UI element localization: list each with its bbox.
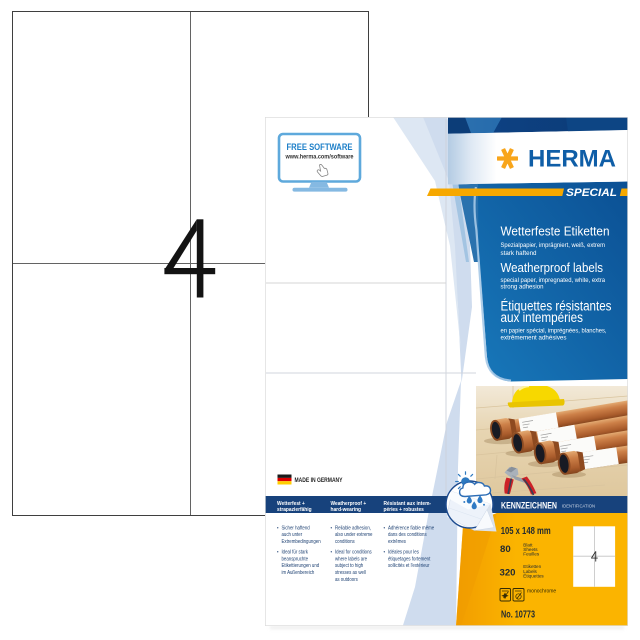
svg-text:No. 10773: No. 10773: [501, 610, 535, 621]
svg-text:Ideal for conditions: Ideal for conditions: [335, 549, 372, 555]
svg-text:extrêmement adhésives: extrêmement adhésives: [501, 334, 568, 341]
svg-text:strapazierfähig: strapazierfähig: [277, 507, 312, 513]
svg-text:HERMA: HERMA: [528, 146, 616, 173]
svg-text:conditions: conditions: [335, 539, 355, 545]
svg-text:étiquetages fortement: étiquetages fortement: [388, 556, 431, 562]
svg-text:aux intempéries: aux intempéries: [501, 310, 584, 325]
svg-text:Ideal für stark: Ideal für stark: [281, 549, 308, 555]
svg-text:extrêmes: extrêmes: [388, 539, 407, 545]
svg-text:FREE SOFTWARE: FREE SOFTWARE: [287, 142, 353, 152]
svg-text:KENNZEICHNEN: KENNZEICHNEN: [501, 500, 557, 510]
svg-text:hard-wearing: hard-wearing: [331, 507, 362, 513]
svg-text:im Außenbereich: im Außenbereich: [281, 570, 314, 576]
svg-text:as outdoors: as outdoors: [335, 577, 358, 583]
svg-text:subject to high: subject to high: [335, 563, 364, 569]
svg-text:Feuilles: Feuilles: [523, 552, 540, 557]
svg-text:where labels are: where labels are: [335, 556, 367, 562]
svg-text:stark haftend: stark haftend: [501, 250, 537, 257]
svg-text:Etikettierungen und: Etikettierungen und: [281, 563, 319, 569]
svg-text:Extrembedingungen: Extrembedingungen: [281, 539, 321, 545]
svg-text:Wetterfeste Etiketten: Wetterfeste Etiketten: [501, 225, 610, 239]
svg-text:strong adhesion: strong adhesion: [501, 284, 544, 291]
svg-text:also under extreme: also under extreme: [335, 532, 373, 538]
svg-text:IDENTIFICATION: IDENTIFICATION: [562, 504, 595, 510]
svg-text:MADE IN GERMANY: MADE IN GERMANY: [295, 477, 344, 484]
svg-text:www.herma.com/software: www.herma.com/software: [285, 154, 354, 161]
svg-text:auch unter: auch unter: [281, 532, 302, 538]
svg-text:stresses as well: stresses as well: [335, 570, 366, 576]
svg-text:sollicités et l'extérieur: sollicités et l'extérieur: [388, 563, 430, 569]
svg-text:105 x 148 mm: 105 x 148 mm: [501, 526, 551, 537]
svg-text:Idéales pour les: Idéales pour les: [388, 549, 420, 555]
svg-text:Reliable adhesion,: Reliable adhesion,: [335, 525, 371, 531]
svg-text:Spezialpapier, imprägniert, we: Spezialpapier, imprägniert, weiß, extrem: [501, 242, 606, 249]
svg-text:dans des conditions: dans des conditions: [388, 532, 427, 538]
svg-text:Étiquettes: Étiquettes: [523, 572, 544, 578]
svg-text:monochrome: monochrome: [527, 589, 556, 595]
svg-text:Weatherproof labels: Weatherproof labels: [501, 261, 604, 275]
svg-text:80: 80: [500, 544, 511, 555]
svg-text:péries + robustes: péries + robustes: [384, 507, 424, 513]
svg-text:SPECIAL: SPECIAL: [566, 187, 617, 199]
svg-text:beanspruchte: beanspruchte: [281, 556, 308, 562]
svg-text:Sicher haftend: Sicher haftend: [281, 525, 310, 531]
svg-text:Adhérence fiable même: Adhérence fiable même: [388, 525, 435, 531]
svg-text:320: 320: [500, 568, 516, 579]
